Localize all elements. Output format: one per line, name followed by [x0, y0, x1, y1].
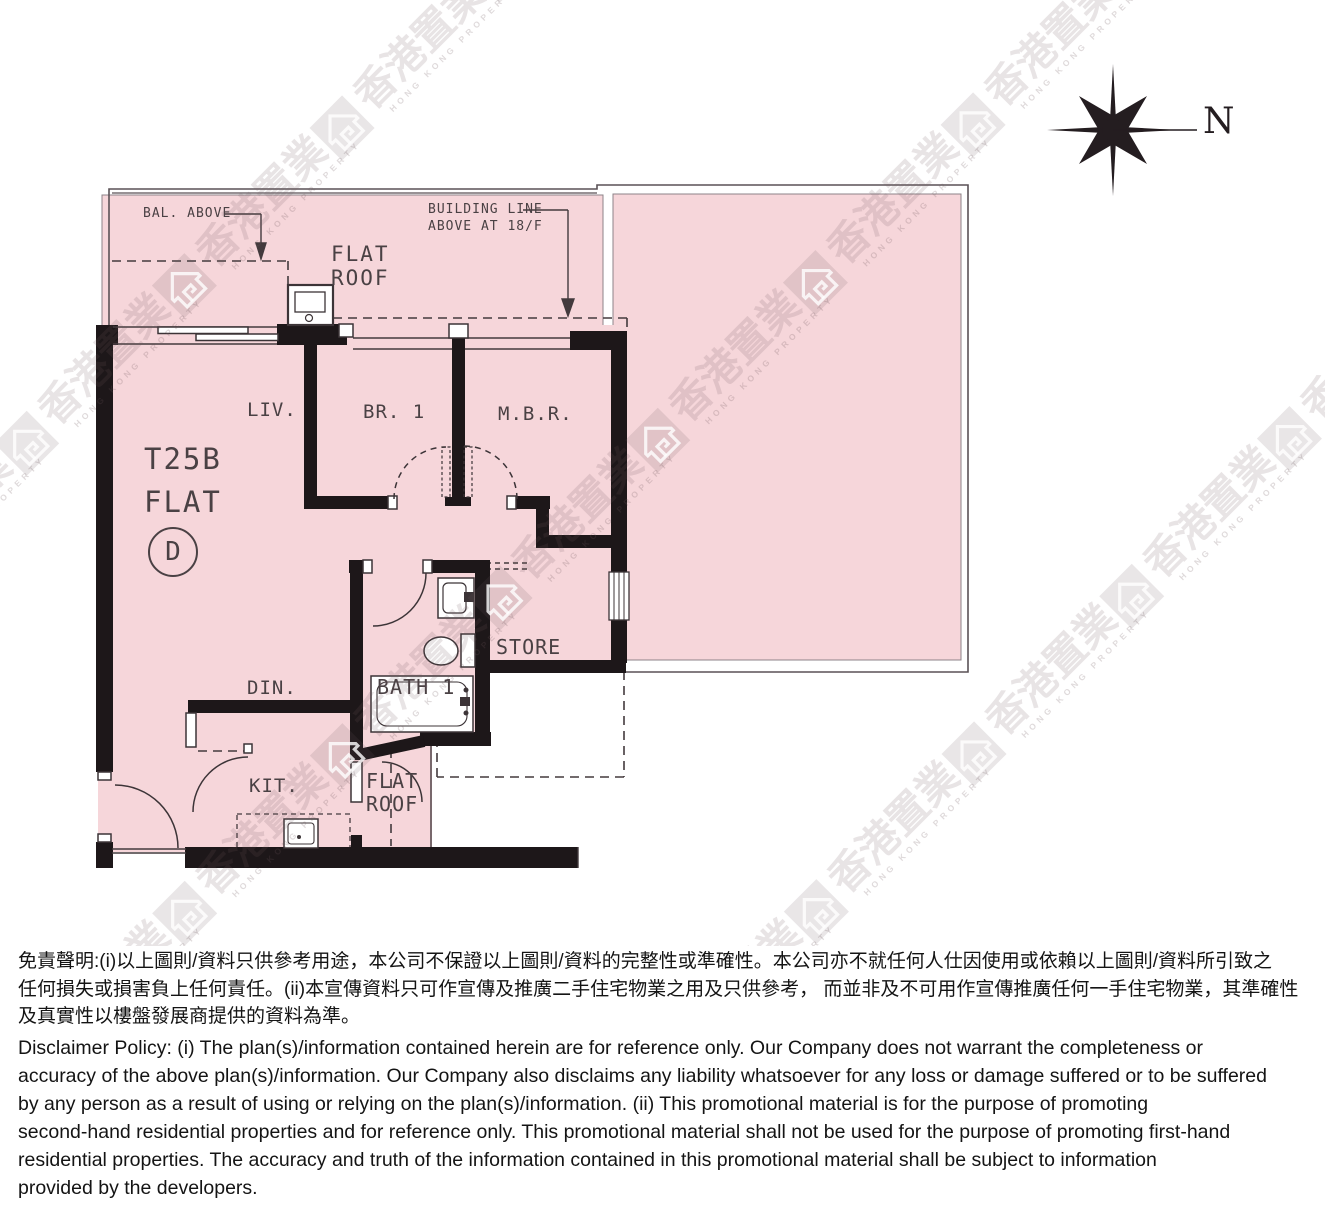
disclaimer-en-line: by any person as a result of using or re…: [18, 1090, 1310, 1118]
compass-rose: [1047, 64, 1197, 196]
disclaimer-en-line: accuracy of the above plan(s)/informatio…: [18, 1062, 1310, 1090]
jamb-din: [186, 713, 196, 747]
jamb-mbr: [507, 496, 516, 509]
disclaimer-en: Disclaimer Policy: (i) The plan(s)/infor…: [18, 1034, 1310, 1202]
flat-roof-fill-areas: [98, 194, 961, 852]
bathtub-inner: [377, 682, 467, 726]
toilet-cistern: [461, 634, 475, 667]
kitchen-sink-inner: [288, 823, 314, 844]
bathtub-tap: [460, 697, 470, 706]
kitchen-sink-drain: [297, 835, 301, 839]
disclaimer-en-line: Disclaimer Policy: (i) The plan(s)/infor…: [18, 1034, 1310, 1062]
jamb-flat-roof-door: [351, 762, 362, 802]
floor-plan-page: BAL. ABOVE BUILDING LINE ABOVE AT 18/F F…: [0, 0, 1325, 1205]
roof-fixture-drain: [306, 315, 313, 322]
louvre-bar-2: [196, 334, 278, 341]
disclaimer-zh: 免責聲明:(i)以上圖則/資料只供參考用途，本公司不保證以上圖則/資料的完整性或…: [18, 948, 1310, 1031]
jamb-entry-bottom: [98, 834, 111, 842]
toilet-bowl: [424, 637, 458, 665]
floor-plan-svg: [0, 0, 1325, 950]
disclaimer-zh-line: 及真實性以樓盤發展商提供的資料為準。: [18, 1003, 1310, 1031]
washbasin-bowl: [443, 583, 466, 613]
jamb-entry-top: [98, 772, 111, 780]
disclaimer-block: 免責聲明:(i)以上圖則/資料只供參考用途，本公司不保證以上圖則/資料的完整性或…: [18, 948, 1310, 1202]
band-white-box-1: [339, 324, 353, 337]
washbasin-tap: [464, 592, 474, 602]
disclaimer-en-line: residential properties. The accuracy and…: [18, 1146, 1310, 1174]
jamb-bath-r: [423, 560, 432, 573]
disclaimer-en-line: second-hand residential properties and f…: [18, 1118, 1310, 1146]
disclaimer-en-line: provided by the developers.: [18, 1174, 1310, 1202]
roof-fixture-inner: [295, 292, 325, 312]
disclaimer-zh-line: 任何損失或損害負上任何責任。(ii)本宣傳資料只可作宣傳及推廣二手住宅物業之用及…: [18, 976, 1310, 1004]
jamb-bath-l: [363, 560, 372, 573]
disclaimer-zh-line: 免責聲明:(i)以上圖則/資料只供參考用途，本公司不保證以上圖則/資料的完整性或…: [18, 948, 1310, 976]
louvre-bar-1: [158, 327, 248, 334]
jamb-br1: [388, 496, 397, 509]
jamb-kit: [244, 744, 252, 753]
band-white-box-2: [449, 324, 468, 338]
